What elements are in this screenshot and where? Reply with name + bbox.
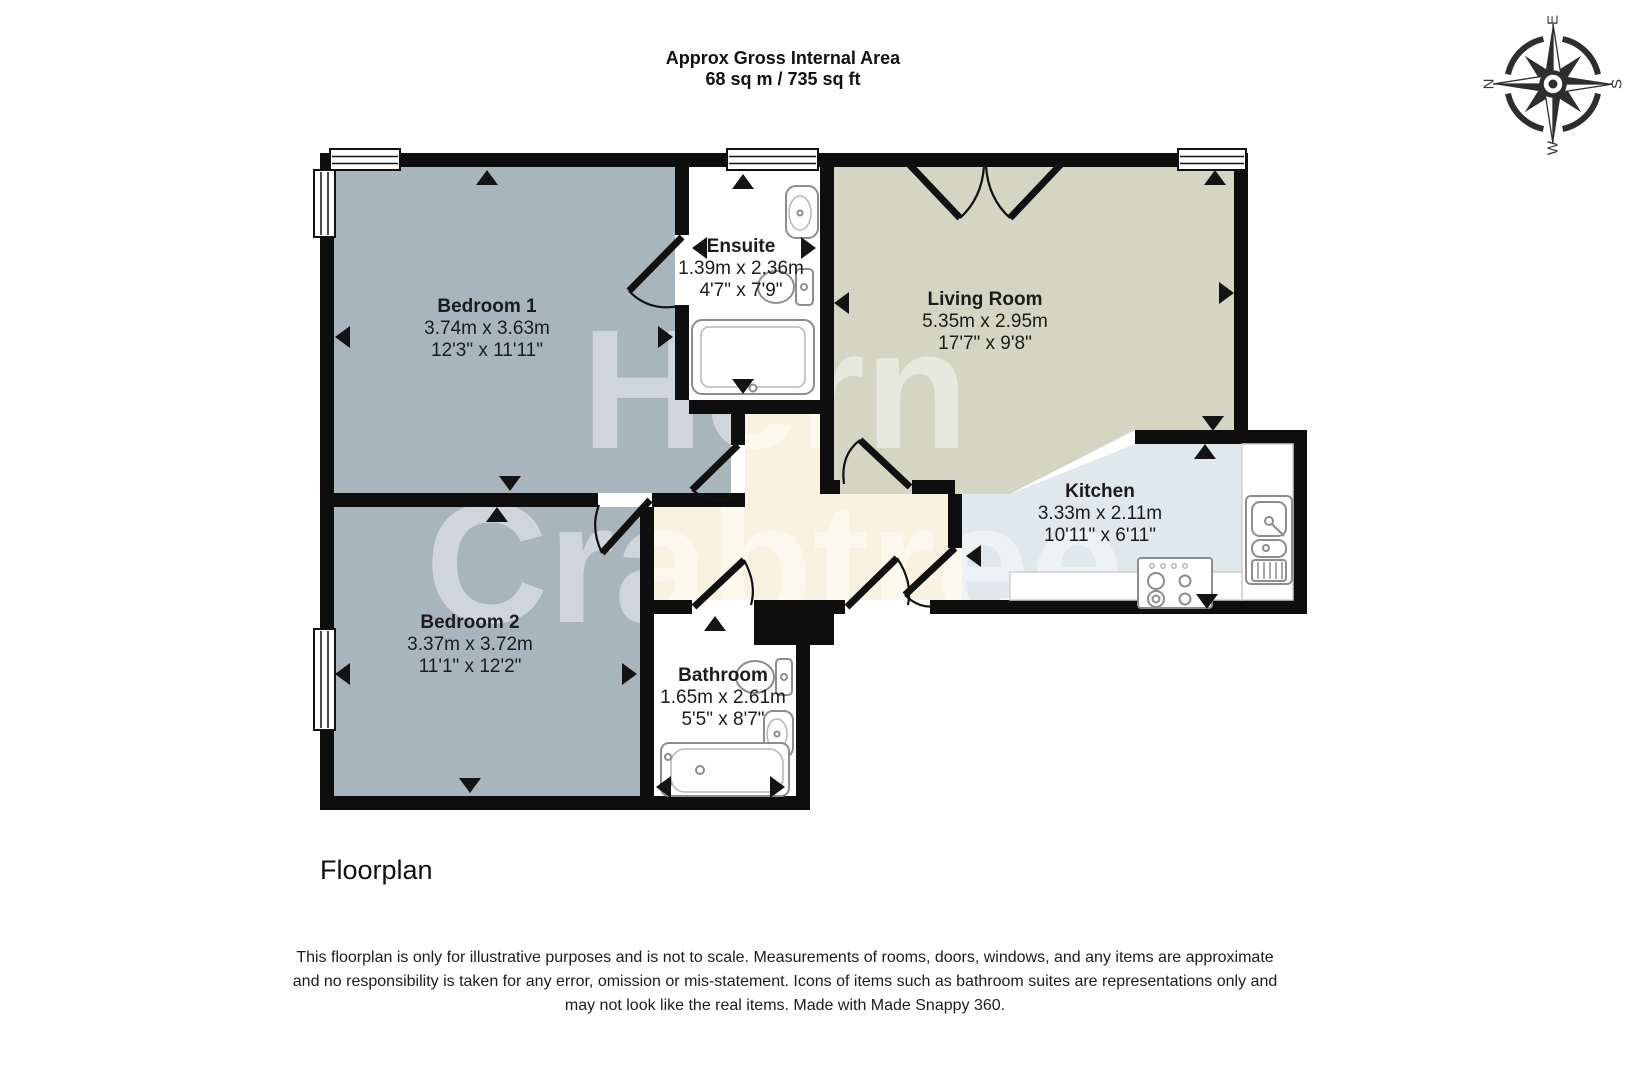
floorplan-drawing: Hern Crabtree [0, 0, 1641, 1080]
title-line2: 68 sq m / 735 sq ft [666, 69, 900, 90]
room-label-bedroom1: Bedroom 1 3.74m x 3.63m 12'3" x 11'11" [424, 296, 550, 362]
room-label-bathroom: Bathroom 1.65m x 2.61m 5'5" x 8'7" [660, 665, 786, 731]
window-living-top [1178, 149, 1246, 170]
disclaimer-line3: may not look like the real items. Made w… [293, 994, 1277, 1018]
room-dim-metric: 1.65m x 2.61m [660, 687, 786, 709]
room-label-kitchen: Kitchen 3.33m x 2.11m 10'11" x 6'11" [1038, 481, 1162, 547]
compass-label-e: E [1545, 15, 1562, 25]
room-name: Living Room [922, 289, 1048, 311]
window-bedroom2-left [314, 629, 335, 730]
room-dim-metric: 1.39m x 2.36m [678, 258, 804, 280]
floorplan-caption: Floorplan [320, 855, 433, 886]
floorplan-page: Hern Crabtree [0, 0, 1641, 1080]
title-line1: Approx Gross Internal Area [666, 48, 900, 69]
compass-rose-icon: N E S W [1481, 15, 1626, 155]
disclaimer-line2: and no responsibility is taken for any e… [293, 970, 1277, 994]
room-dim-imperial: 12'3" x 11'11" [424, 340, 550, 362]
room-label-living: Living Room 5.35m x 2.95m 17'7" x 9'8" [922, 289, 1048, 355]
window-bedroom1-left [314, 170, 335, 237]
disclaimer-line1: This floorplan is only for illustrative … [293, 946, 1277, 970]
shower-tray-icon [692, 320, 814, 394]
disclaimer-text: This floorplan is only for illustrative … [293, 946, 1277, 1018]
room-name: Bedroom 2 [407, 612, 533, 634]
ensuite-sink-icon [786, 186, 818, 238]
room-name: Bedroom 1 [424, 296, 550, 318]
room-dim-imperial: 17'7" x 9'8" [922, 333, 1048, 355]
room-name: Bathroom [660, 665, 786, 687]
window-ensuite-top [727, 149, 818, 170]
compass-label-w: W [1545, 140, 1562, 155]
window-bedroom1-top [330, 149, 400, 170]
room-dim-metric: 3.37m x 3.72m [407, 634, 533, 656]
page-title: Approx Gross Internal Area 68 sq m / 735… [666, 48, 900, 90]
room-name: Ensuite [678, 236, 804, 258]
room-label-bedroom2: Bedroom 2 3.37m x 3.72m 11'1" x 12'2" [407, 612, 533, 678]
room-dim-imperial: 10'11" x 6'11" [1038, 525, 1162, 547]
room-dim-imperial: 4'7" x 7'9" [678, 280, 804, 302]
room-label-ensuite: Ensuite 1.39m x 2.36m 4'7" x 7'9" [678, 236, 804, 302]
room-dim-imperial: 11'1" x 12'2" [407, 656, 533, 678]
kitchen-sink-icon [1246, 496, 1292, 584]
room-dim-metric: 3.74m x 3.63m [424, 318, 550, 340]
room-dim-imperial: 5'5" x 8'7" [660, 709, 786, 731]
bathtub-icon [661, 743, 789, 796]
compass-label-n: N [1481, 79, 1498, 90]
room-dim-metric: 5.35m x 2.95m [922, 311, 1048, 333]
compass-label-s: S [1609, 79, 1626, 89]
room-dim-metric: 3.33m x 2.11m [1038, 503, 1162, 525]
room-name: Kitchen [1038, 481, 1162, 503]
